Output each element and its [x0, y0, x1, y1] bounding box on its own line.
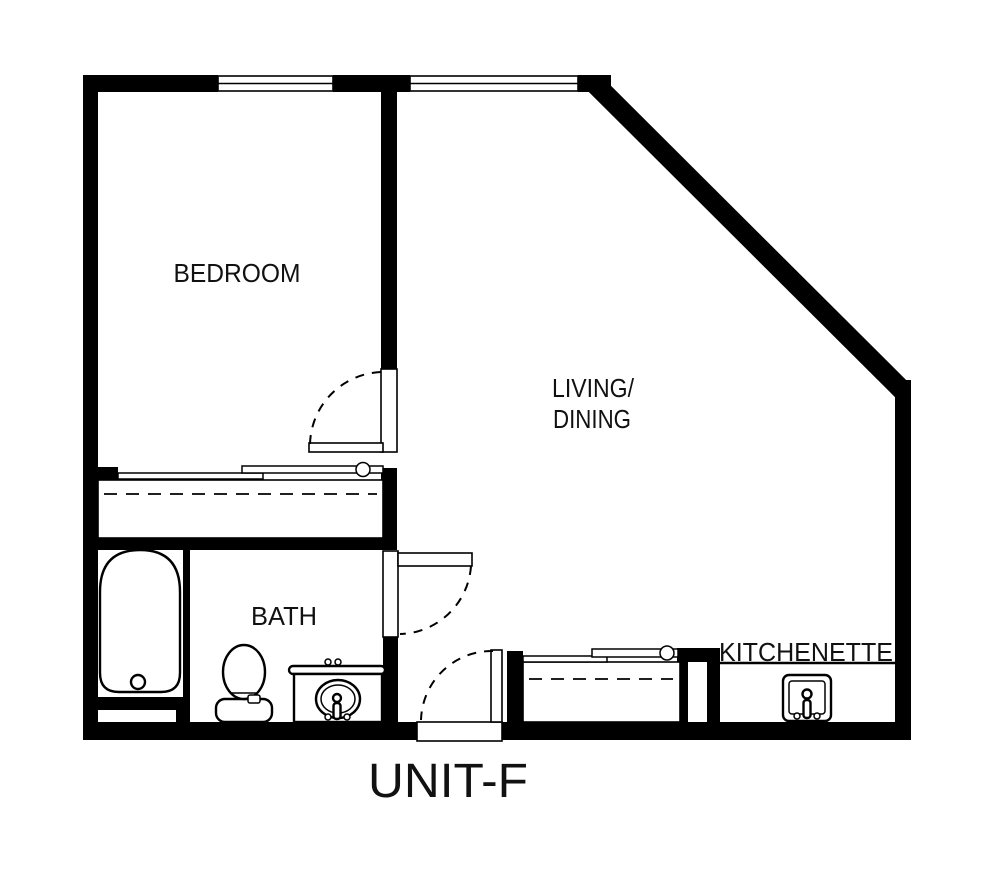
diagonal-wall: [595, 84, 903, 391]
door-swing: [310, 372, 382, 444]
door-opening: [381, 369, 397, 452]
entry-threshold: [417, 722, 502, 741]
kitchenette-sink: [783, 675, 831, 721]
bath-door: [383, 551, 472, 637]
bath-label: BATH: [251, 601, 317, 631]
toilet-tank: [216, 699, 272, 722]
faucet-icon: [803, 690, 812, 699]
toilet-bowl: [223, 645, 265, 699]
bedroom-door: [309, 369, 397, 452]
door-leaf: [309, 443, 383, 452]
door-pull-icon: [660, 646, 674, 660]
floor-plan-page: BEDROOM LIVING/ DINING BATH KITCHENETTE …: [0, 0, 995, 874]
drain-icon: [131, 675, 145, 689]
divider-niche: [688, 662, 707, 722]
bedroom-label: BEDROOM: [174, 258, 301, 288]
hall-closet: [523, 646, 680, 722]
door-leaf: [398, 553, 472, 566]
bathtub: [100, 550, 180, 692]
door-swing: [400, 566, 471, 634]
floor-plan: BEDROOM LIVING/ DINING BATH KITCHENETTE …: [0, 0, 995, 874]
closet-door-track: [118, 473, 263, 479]
bedroom-closet: [98, 463, 383, 539]
toilet: [216, 645, 272, 722]
entry-door: [417, 650, 502, 741]
bedroom-window: [218, 76, 333, 91]
kitchenette-label: KITCHENETTE: [719, 637, 893, 667]
living-dining-label-line1: LIVING/: [552, 373, 635, 403]
unit-title: UNIT-F: [368, 755, 528, 808]
counter-edge: [289, 666, 385, 674]
door-pull-icon: [356, 463, 370, 477]
living-window: [410, 76, 578, 91]
door-leaf: [491, 650, 502, 722]
vanity-sink: [289, 659, 385, 722]
door-swing: [421, 651, 493, 720]
living-dining-label-line2: DINING: [553, 404, 631, 434]
door-opening: [383, 551, 398, 637]
faucet-icon: [333, 694, 341, 702]
